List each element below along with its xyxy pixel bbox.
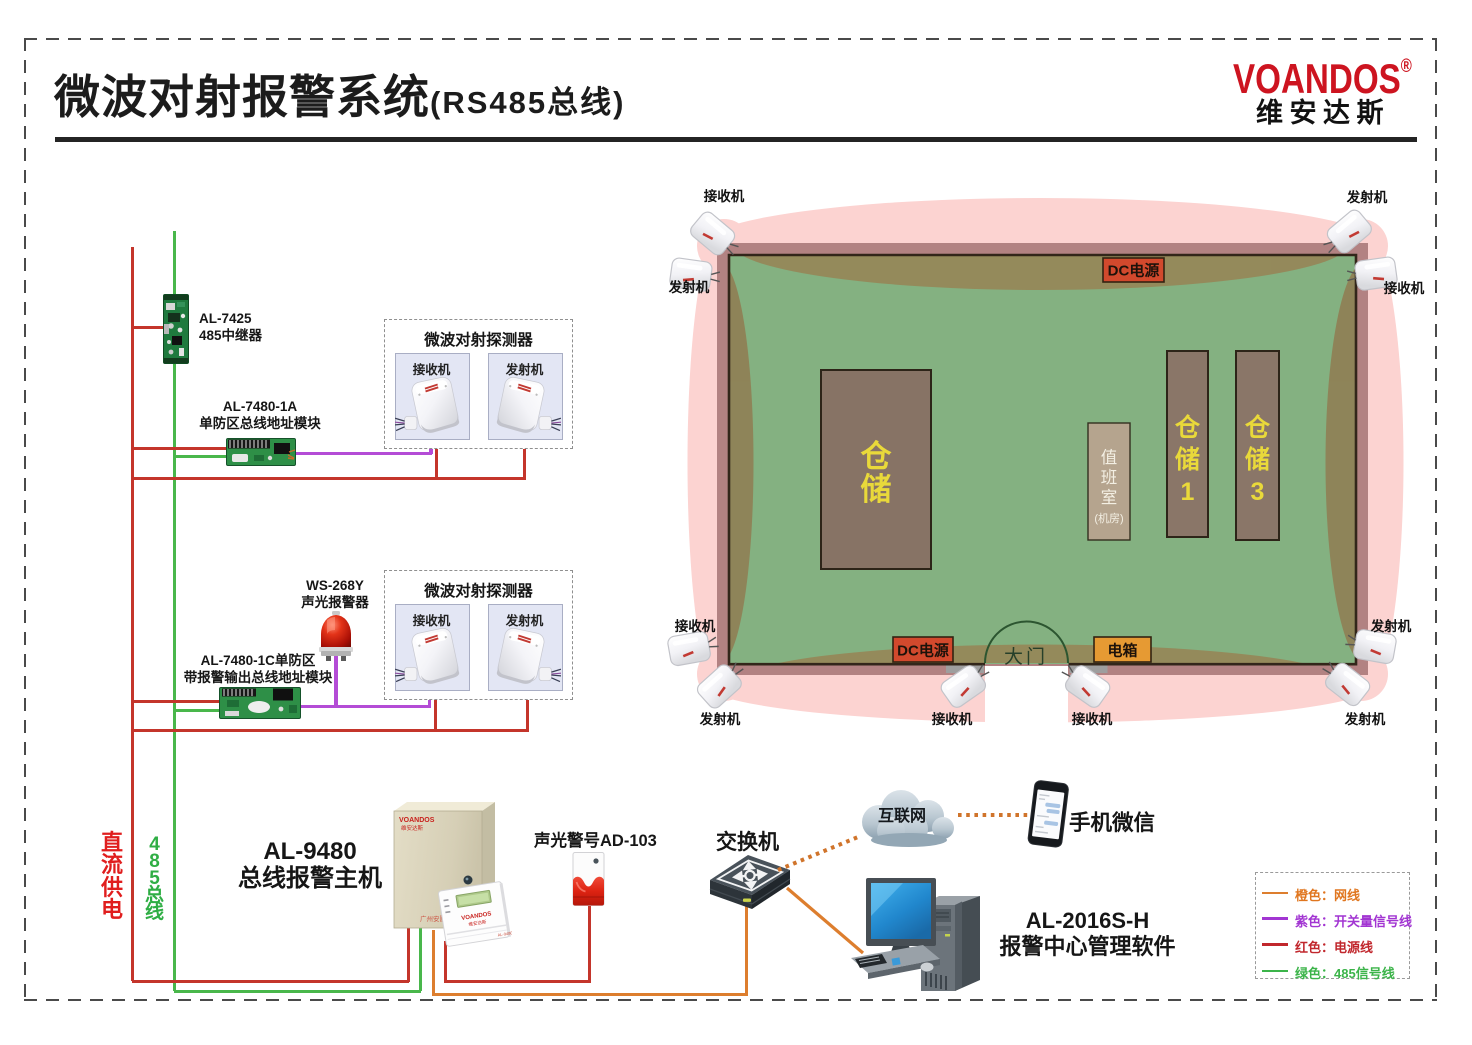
svg-text:发射机: 发射机 <box>1344 711 1386 727</box>
svg-text:发射机: 发射机 <box>1370 618 1412 634</box>
svg-text:接收机: 接收机 <box>932 711 973 727</box>
svg-text:接收机: 接收机 <box>1384 280 1425 296</box>
svg-text:接收机: 接收机 <box>1072 711 1113 727</box>
svg-text:维安达斯: 维安达斯 <box>401 824 424 832</box>
svg-text:大门: 大门 <box>1004 646 1048 668</box>
svg-text:DC电源: DC电源 <box>1108 262 1160 280</box>
svg-text:电箱: 电箱 <box>1107 642 1137 660</box>
svg-text:班: 班 <box>1101 468 1118 487</box>
svg-text:发射机: 发射机 <box>699 711 741 727</box>
svg-text:仓: 仓 <box>1174 413 1201 442</box>
svg-text:接收机: 接收机 <box>675 618 716 634</box>
svg-text:互联网: 互联网 <box>878 807 926 825</box>
svg-text:发射机: 发射机 <box>668 279 710 295</box>
svg-text:室: 室 <box>1101 488 1118 507</box>
svg-text:值: 值 <box>1101 448 1118 467</box>
svg-text:(机房): (机房) <box>1094 511 1123 525</box>
svg-text:发射机: 发射机 <box>1346 189 1388 205</box>
svg-text:仓: 仓 <box>1244 413 1271 442</box>
svg-text:DC电源: DC电源 <box>897 642 949 660</box>
svg-text:3: 3 <box>1251 478 1265 506</box>
svg-text:储: 储 <box>1245 445 1270 474</box>
svg-text:1: 1 <box>1181 478 1195 506</box>
svg-text:接收机: 接收机 <box>704 188 745 204</box>
svg-text:仓: 仓 <box>861 439 893 474</box>
svg-text:储: 储 <box>1175 445 1200 474</box>
svg-text:储: 储 <box>861 472 892 507</box>
svg-text:VOANDOS: VOANDOS <box>399 817 435 824</box>
